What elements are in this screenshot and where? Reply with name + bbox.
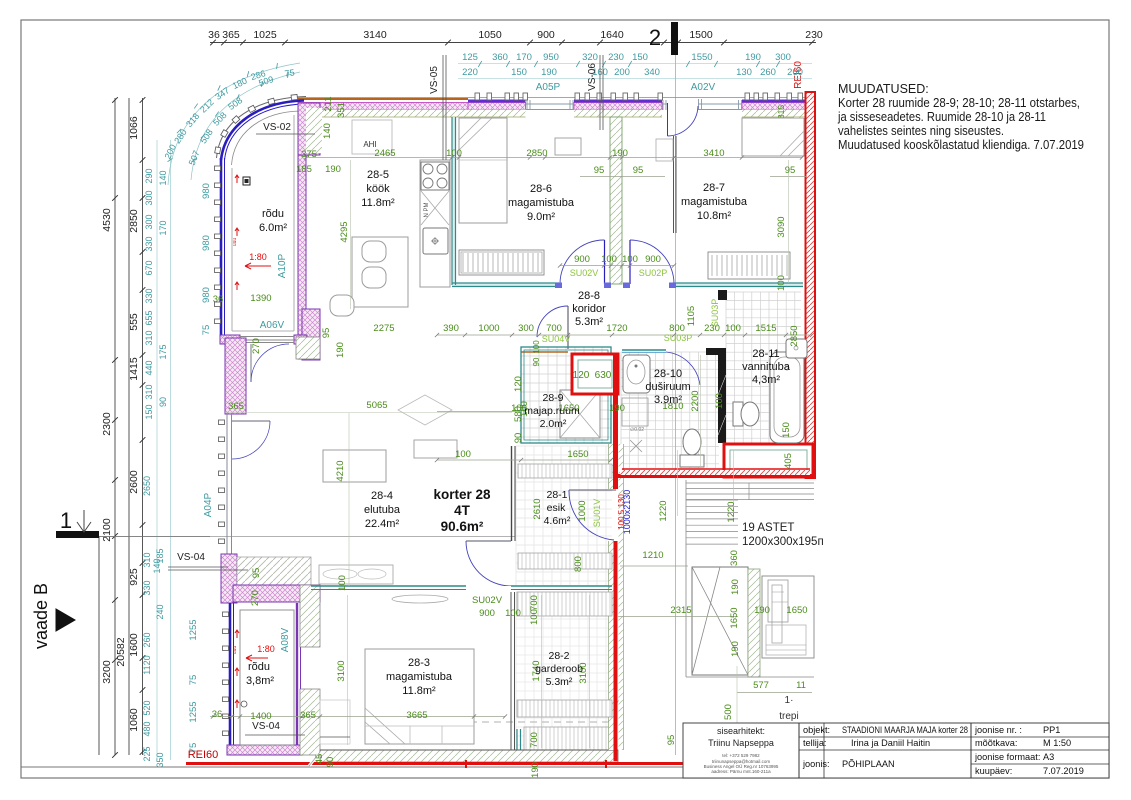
svg-text:405: 405 — [783, 453, 794, 469]
svg-text:1550: 1550 — [691, 52, 712, 63]
svg-text:vaade B: vaade B — [31, 583, 51, 649]
svg-text:1500: 1500 — [689, 29, 713, 41]
svg-text:520: 520 — [142, 700, 152, 715]
svg-text:magamistuba: magamistuba — [681, 196, 748, 208]
svg-text:90: 90 — [158, 397, 168, 407]
svg-text:555: 555 — [128, 313, 140, 331]
svg-text:4210: 4210 — [335, 460, 346, 481]
svg-text:PÕHIPLAAN: PÕHIPLAAN — [842, 759, 895, 769]
svg-text:1390: 1390 — [250, 293, 271, 304]
svg-text:28-3: 28-3 — [408, 657, 430, 669]
svg-text:1255: 1255 — [188, 619, 199, 640]
svg-text:351: 351 — [336, 102, 347, 118]
svg-text:700: 700 — [529, 732, 540, 748]
svg-text:75: 75 — [188, 743, 199, 754]
svg-text:5.3m²: 5.3m² — [546, 676, 573, 688]
svg-text:440: 440 — [144, 360, 154, 375]
svg-text:140: 140 — [152, 558, 162, 573]
svg-text:rõdu: rõdu — [262, 208, 284, 220]
svg-text:630: 630 — [595, 370, 612, 381]
svg-text:A10P: A10P — [277, 253, 288, 278]
svg-text:1000: 1000 — [478, 323, 499, 334]
svg-text:1220: 1220 — [658, 500, 669, 521]
svg-text:1000: 1000 — [577, 500, 588, 521]
svg-text:A02V: A02V — [691, 82, 716, 93]
svg-text:2.0m²: 2.0m² — [540, 418, 567, 430]
svg-text:100: 100 — [776, 275, 787, 291]
svg-text:95: 95 — [321, 328, 332, 339]
svg-text:260: 260 — [787, 67, 803, 78]
svg-text:1650: 1650 — [729, 607, 740, 628]
svg-text:majap.ruum: majap.ruum — [524, 405, 580, 417]
svg-text:310: 310 — [144, 330, 154, 345]
svg-text:1:80: 1:80 — [257, 644, 275, 654]
svg-text:365: 365 — [228, 401, 244, 412]
svg-text:140: 140 — [322, 123, 333, 139]
svg-text:980: 980 — [201, 183, 212, 199]
svg-text:1025: 1025 — [253, 29, 277, 41]
svg-text:28-2: 28-2 — [548, 650, 569, 662]
svg-text:100 5 130: 100 5 130 — [617, 494, 626, 530]
svg-text:SU03P: SU03P — [710, 299, 720, 328]
svg-text:22.4m²: 22.4m² — [365, 518, 400, 530]
svg-text:köök: köök — [366, 183, 390, 195]
svg-text:kuupäev:: kuupäev: — [975, 766, 1012, 776]
svg-text:1220: 1220 — [726, 501, 737, 522]
svg-text:2200: 2200 — [690, 390, 701, 411]
svg-text:ja sisseseadetes. Ruumide 28-1: ja sisseseadetes. Ruumide 28-10 ja 28-11 — [837, 110, 1046, 124]
svg-text:elutuba: elutuba — [364, 504, 401, 516]
svg-text:tellija:: tellija: — [803, 738, 827, 748]
svg-text:700: 700 — [529, 595, 540, 611]
svg-text:1720: 1720 — [606, 323, 627, 334]
svg-text:2465: 2465 — [374, 148, 395, 159]
svg-text:28-11: 28-11 — [752, 348, 779, 360]
svg-text:375: 375 — [301, 149, 317, 160]
svg-text:2850: 2850 — [789, 325, 800, 346]
svg-text:A04P: A04P — [203, 492, 214, 517]
svg-text:Triinu Napseppa: Triinu Napseppa — [708, 738, 774, 748]
svg-text:300: 300 — [144, 214, 154, 229]
svg-text:480: 480 — [142, 721, 152, 736]
svg-text:11: 11 — [796, 680, 806, 691]
svg-text:joonis:: joonis: — [802, 759, 830, 769]
svg-text:Muudatused kooskõlastatud klie: Muudatused kooskõlastatud kliendiga. 7.0… — [838, 138, 1084, 152]
svg-text:M 1:50: M 1:50 — [1043, 738, 1071, 748]
svg-text:PP1: PP1 — [1043, 725, 1060, 735]
svg-text:130: 130 — [736, 67, 752, 78]
svg-text:2850: 2850 — [128, 209, 140, 233]
svg-text:75: 75 — [201, 325, 212, 336]
svg-text:MUUDATUSED:: MUUDATUSED: — [838, 82, 929, 96]
svg-text:670: 670 — [144, 260, 154, 275]
svg-text:1066: 1066 — [128, 116, 140, 140]
svg-text:360: 360 — [729, 550, 740, 566]
svg-text:655: 655 — [144, 310, 154, 325]
svg-text:A05P: A05P — [536, 82, 561, 93]
svg-text:STAADIONI MAARJA MAJA korter 2: STAADIONI MAARJA MAJA korter 28 — [842, 725, 968, 735]
svg-text:28-6: 28-6 — [530, 183, 552, 195]
svg-text:310: 310 — [142, 552, 152, 567]
svg-text:mõõtkava:: mõõtkava: — [975, 738, 1017, 748]
svg-text:SU02V: SU02V — [472, 595, 503, 606]
svg-text:3090: 3090 — [776, 216, 787, 237]
svg-text:magamistuba: magamistuba — [508, 197, 575, 209]
svg-text:36: 36 — [213, 294, 224, 305]
svg-text:3,8m²: 3,8m² — [246, 675, 274, 687]
svg-text:A3: A3 — [1043, 752, 1054, 762]
svg-text:9.0m²: 9.0m² — [527, 211, 555, 223]
svg-text:95: 95 — [251, 568, 262, 579]
svg-text:140: 140 — [158, 170, 168, 185]
svg-text:vannituba: vannituba — [742, 361, 791, 373]
svg-text:2850: 2850 — [526, 148, 547, 159]
svg-text:2275: 2275 — [373, 323, 394, 334]
svg-text:vahelistes seintes ning siseus: vahelistes seintes ning siseustes. — [838, 124, 1004, 138]
svg-text:100: 100 — [601, 254, 617, 265]
svg-text:1060: 1060 — [128, 708, 140, 732]
svg-text:SU04V: SU04V — [542, 334, 571, 344]
svg-text:28-5: 28-5 — [367, 169, 389, 181]
svg-text:75: 75 — [284, 67, 295, 78]
svg-text:1·: 1· — [785, 695, 794, 706]
svg-text:100: 100 — [714, 393, 725, 409]
svg-text:VS-05: VS-05 — [429, 66, 440, 94]
svg-text:aadress: Pärnu mnt.160-211a: aadress: Pärnu mnt.160-211a — [711, 769, 771, 774]
svg-text:75: 75 — [188, 675, 199, 686]
svg-text:900: 900 — [645, 254, 661, 265]
svg-text:300: 300 — [775, 52, 791, 63]
svg-text:AHI: AHI — [363, 140, 376, 149]
svg-text:190: 190 — [325, 164, 341, 175]
svg-text:200: 200 — [614, 67, 630, 78]
svg-text:170: 170 — [158, 220, 168, 235]
svg-text:45: 45 — [314, 754, 325, 765]
svg-text:125: 125 — [462, 52, 478, 63]
svg-text:150: 150 — [511, 67, 527, 78]
svg-text:150: 150 — [632, 52, 648, 63]
svg-text:290: 290 — [144, 168, 154, 183]
svg-text:VS-06: VS-06 — [587, 63, 598, 91]
svg-text:3140: 3140 — [363, 29, 387, 41]
svg-text:7.07.2019: 7.07.2019 — [1043, 766, 1084, 776]
svg-text:190: 190 — [730, 579, 741, 595]
svg-text:4.6m²: 4.6m² — [544, 515, 571, 527]
svg-text:900: 900 — [537, 29, 555, 41]
svg-text:365: 365 — [300, 710, 316, 721]
svg-text:980: 980 — [201, 235, 212, 251]
svg-text:100: 100 — [337, 575, 348, 591]
svg-text:300: 300 — [518, 323, 534, 334]
svg-text:90: 90 — [532, 357, 541, 366]
svg-text:2315: 2315 — [670, 605, 691, 616]
svg-text:120: 120 — [573, 370, 590, 381]
svg-text:1640: 1640 — [600, 29, 624, 41]
svg-text:28-10: 28-10 — [654, 368, 682, 380]
svg-text:340: 340 — [644, 67, 660, 78]
svg-text:1600: 1600 — [128, 633, 140, 657]
svg-text:95: 95 — [633, 165, 644, 176]
svg-text:1:80: 1:80 — [249, 252, 267, 262]
svg-text:190: 190 — [730, 641, 741, 657]
svg-text:800: 800 — [573, 556, 584, 572]
svg-text:10.8m²: 10.8m² — [697, 210, 732, 222]
svg-text:1415: 1415 — [128, 357, 140, 381]
svg-text:900: 900 — [574, 254, 590, 265]
svg-text:300: 300 — [144, 190, 154, 205]
svg-text:4530: 4530 — [101, 208, 113, 232]
svg-text:Irina ja Daniil Haitin: Irina ja Daniil Haitin — [851, 738, 930, 748]
svg-text:trepi: trepi — [779, 711, 798, 722]
svg-text:100: 100 — [532, 340, 541, 354]
svg-text:365: 365 — [222, 29, 240, 41]
svg-text:3200: 3200 — [101, 660, 113, 684]
svg-text:5065: 5065 — [366, 400, 387, 411]
svg-text:315: 315 — [776, 105, 786, 119]
svg-text:270: 270 — [251, 338, 262, 354]
svg-text:2610: 2610 — [532, 498, 543, 519]
svg-text:95: 95 — [666, 735, 677, 746]
svg-text:980: 980 — [201, 287, 212, 303]
svg-text:VS-04: VS-04 — [252, 721, 280, 732]
svg-text:900: 900 — [479, 608, 495, 619]
svg-text:2600: 2600 — [128, 470, 140, 494]
svg-text:28-7: 28-7 — [703, 182, 725, 194]
svg-text:150: 150 — [144, 404, 154, 419]
svg-text:190: 190 — [609, 403, 625, 414]
svg-text:95: 95 — [785, 165, 796, 176]
svg-text:220: 220 — [462, 67, 478, 78]
svg-text:500: 500 — [723, 704, 734, 720]
svg-text:190: 190 — [612, 148, 628, 159]
svg-text:211: 211 — [323, 96, 334, 111]
svg-text:150: 150 — [781, 422, 792, 438]
svg-text:SU01V: SU01V — [592, 499, 602, 528]
svg-text:90.6m²: 90.6m² — [441, 519, 484, 534]
svg-text:4,3m²: 4,3m² — [752, 374, 780, 386]
svg-text:240: 240 — [155, 604, 165, 619]
svg-text:190: 190 — [754, 605, 770, 616]
svg-text:koridor: koridor — [572, 303, 606, 315]
svg-text:1210: 1210 — [642, 550, 663, 561]
svg-text:11.8m²: 11.8m² — [361, 197, 395, 209]
svg-text:170: 170 — [516, 52, 532, 63]
svg-text:330: 330 — [144, 288, 154, 303]
svg-text:SU02V: SU02V — [570, 268, 599, 278]
svg-text:28-1: 28-1 — [546, 489, 567, 501]
svg-text:100: 100 — [725, 323, 741, 334]
svg-text:SU02P: SU02P — [639, 268, 668, 278]
svg-text:joonise formaat:: joonise formaat: — [974, 752, 1040, 762]
svg-text:36: 36 — [208, 29, 220, 41]
svg-text:320: 320 — [582, 52, 598, 63]
svg-text:rõdu: rõdu — [248, 661, 270, 673]
svg-text:36: 36 — [212, 709, 223, 720]
svg-text:230: 230 — [608, 52, 624, 63]
svg-text:19 ASTET: 19 ASTET — [742, 522, 794, 534]
svg-text:uuu: uuu — [232, 238, 238, 247]
svg-text:577: 577 — [753, 680, 769, 691]
svg-text:90: 90 — [325, 757, 336, 768]
svg-text:270: 270 — [250, 590, 261, 606]
svg-text:28-9: 28-9 — [542, 392, 563, 404]
svg-text:2650: 2650 — [142, 476, 152, 496]
svg-text:20582: 20582 — [115, 637, 127, 666]
svg-text:2: 2 — [649, 25, 661, 50]
svg-text:3410: 3410 — [703, 148, 724, 159]
svg-text:100: 100 — [455, 449, 471, 460]
svg-text:korter 28: korter 28 — [433, 487, 491, 502]
svg-text:260: 260 — [760, 67, 776, 78]
svg-text:objekt:: objekt: — [803, 725, 830, 735]
svg-text:VS-02: VS-02 — [263, 122, 291, 133]
svg-text:1105: 1105 — [686, 306, 697, 326]
svg-text:120: 120 — [513, 376, 524, 392]
svg-text:1255: 1255 — [188, 701, 199, 722]
svg-text:Korter 28 ruumide 28-9; 28-10: Korter 28 ruumide 28-9; 28-10; 28-11 ots… — [838, 96, 1080, 110]
svg-text:100: 100 — [446, 148, 462, 159]
svg-text:N PM: N PM — [424, 202, 430, 217]
svg-text:350: 350 — [155, 752, 165, 767]
svg-text:310: 310 — [144, 384, 154, 399]
svg-text:1650: 1650 — [786, 605, 807, 616]
svg-text:1200x300x195п: 1200x300x195п — [742, 536, 824, 548]
svg-text:4295: 4295 — [339, 221, 350, 242]
svg-text:4T: 4T — [454, 503, 471, 518]
svg-text:190: 190 — [745, 52, 761, 63]
svg-text:3100: 3100 — [336, 660, 347, 681]
svg-text:esik: esik — [547, 502, 566, 514]
svg-text:100: 100 — [622, 254, 638, 265]
svg-text:uuu: uuu — [232, 646, 238, 655]
svg-text:joonise nr. :: joonise nr. : — [974, 725, 1022, 735]
svg-text:225: 225 — [142, 746, 152, 761]
svg-text:1120: 1120 — [142, 655, 152, 674]
svg-text:925: 925 — [128, 568, 140, 586]
svg-text:230: 230 — [805, 29, 823, 41]
svg-text:A08V: A08V — [280, 627, 291, 652]
svg-text:330: 330 — [142, 580, 152, 595]
svg-text:100: 100 — [529, 609, 540, 625]
svg-text:390: 390 — [443, 323, 459, 334]
svg-text:1050: 1050 — [478, 29, 502, 41]
svg-text:SU03P: SU03P — [664, 333, 693, 343]
svg-text:6.0m²: 6.0m² — [259, 222, 287, 234]
svg-text:2300: 2300 — [101, 412, 113, 436]
svg-text:tel: +372 529 7982: tel: +372 529 7982 — [722, 753, 760, 758]
svg-text:3665: 3665 — [406, 710, 427, 721]
svg-text:190: 190 — [335, 342, 346, 358]
svg-text:260: 260 — [142, 632, 152, 647]
svg-text:sisearhitekt:: sisearhitekt: — [717, 726, 765, 736]
svg-text:950: 950 — [543, 52, 559, 63]
svg-text:11.8m²: 11.8m² — [402, 685, 436, 697]
svg-text:3.9m²: 3.9m² — [654, 394, 682, 406]
svg-text:28-4: 28-4 — [371, 490, 393, 502]
svg-text:175: 175 — [158, 344, 168, 359]
svg-text:5.3m²: 5.3m² — [575, 316, 603, 328]
svg-text:185: 185 — [296, 164, 312, 175]
svg-text:1515: 1515 — [755, 323, 776, 334]
svg-text:90: 90 — [513, 433, 524, 444]
svg-text:190: 190 — [541, 67, 557, 78]
svg-text:garderoob: garderoob — [535, 663, 583, 675]
svg-text:2100: 2100 — [101, 518, 113, 542]
svg-text:700: 700 — [546, 323, 562, 334]
svg-text:1650: 1650 — [567, 449, 588, 460]
svg-text:190: 190 — [530, 762, 541, 778]
svg-text:magamistuba: magamistuba — [386, 671, 453, 683]
svg-text:28-8: 28-8 — [578, 290, 600, 302]
svg-text:330: 330 — [144, 236, 154, 251]
svg-text:1: 1 — [60, 508, 72, 533]
svg-text:A06V: A06V — [260, 320, 285, 331]
svg-text:∅0.02: ∅0.02 — [630, 427, 644, 433]
svg-text:95: 95 — [594, 165, 605, 176]
svg-text:VS-04: VS-04 — [177, 552, 205, 563]
svg-text:100: 100 — [505, 608, 521, 619]
svg-text:360: 360 — [492, 52, 508, 63]
svg-text:duširuum: duširuum — [645, 381, 690, 393]
